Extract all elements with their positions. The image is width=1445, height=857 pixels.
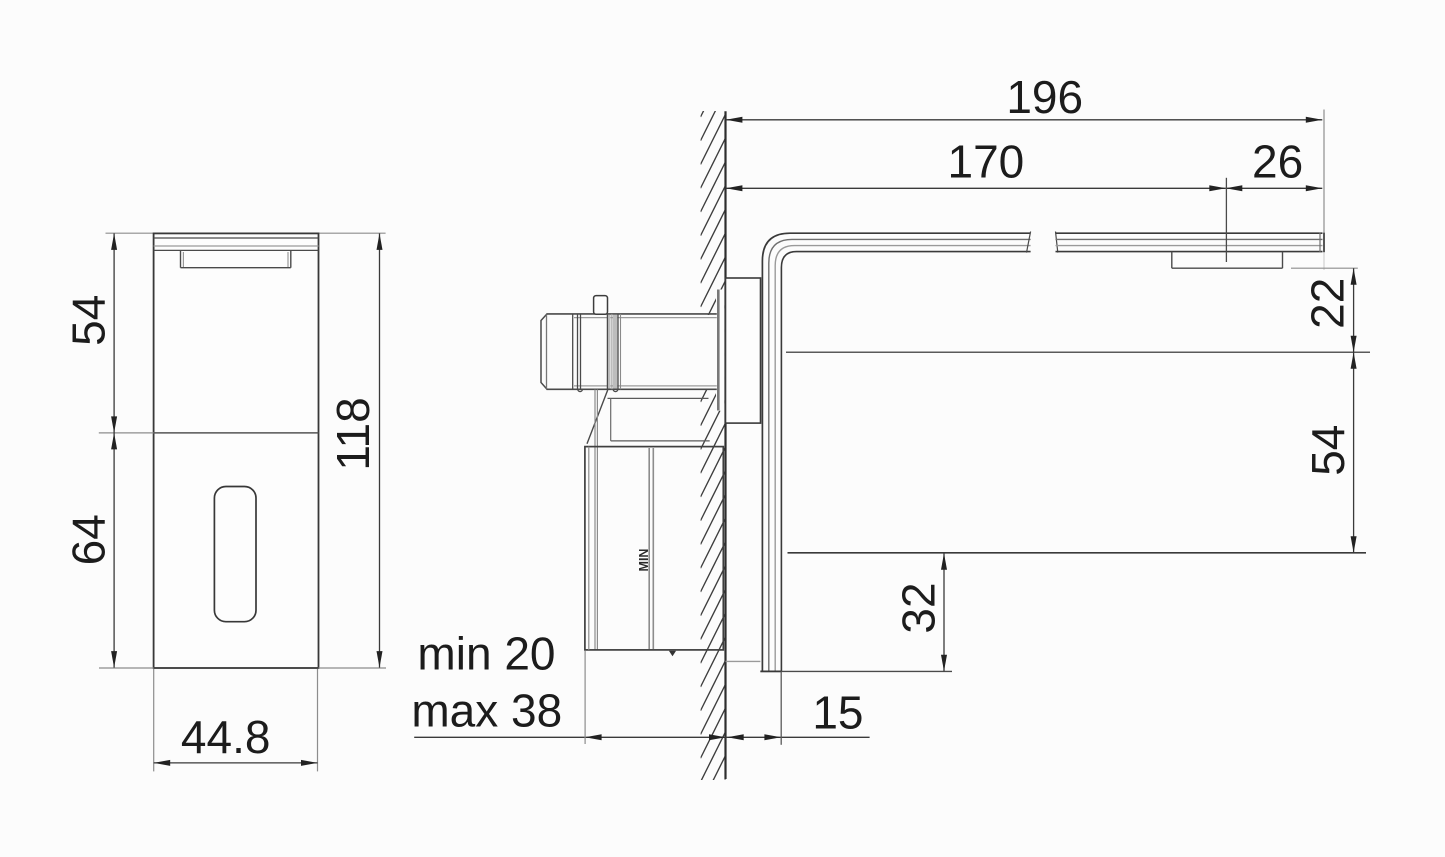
svg-text:MIN: MIN bbox=[637, 549, 651, 572]
svg-text:44.8: 44.8 bbox=[181, 711, 271, 763]
svg-text:64: 64 bbox=[62, 514, 114, 565]
svg-text:196: 196 bbox=[1006, 71, 1083, 123]
svg-text:15: 15 bbox=[812, 687, 863, 739]
svg-text:170: 170 bbox=[948, 135, 1025, 187]
svg-text:26: 26 bbox=[1252, 135, 1303, 187]
svg-text:32: 32 bbox=[893, 582, 945, 633]
svg-text:54: 54 bbox=[63, 295, 115, 346]
svg-text:118: 118 bbox=[327, 397, 379, 470]
svg-text:22: 22 bbox=[1302, 278, 1354, 329]
svg-text:max 38: max 38 bbox=[411, 685, 562, 737]
svg-text:min 20: min 20 bbox=[417, 628, 555, 680]
svg-text:54: 54 bbox=[1302, 425, 1354, 476]
